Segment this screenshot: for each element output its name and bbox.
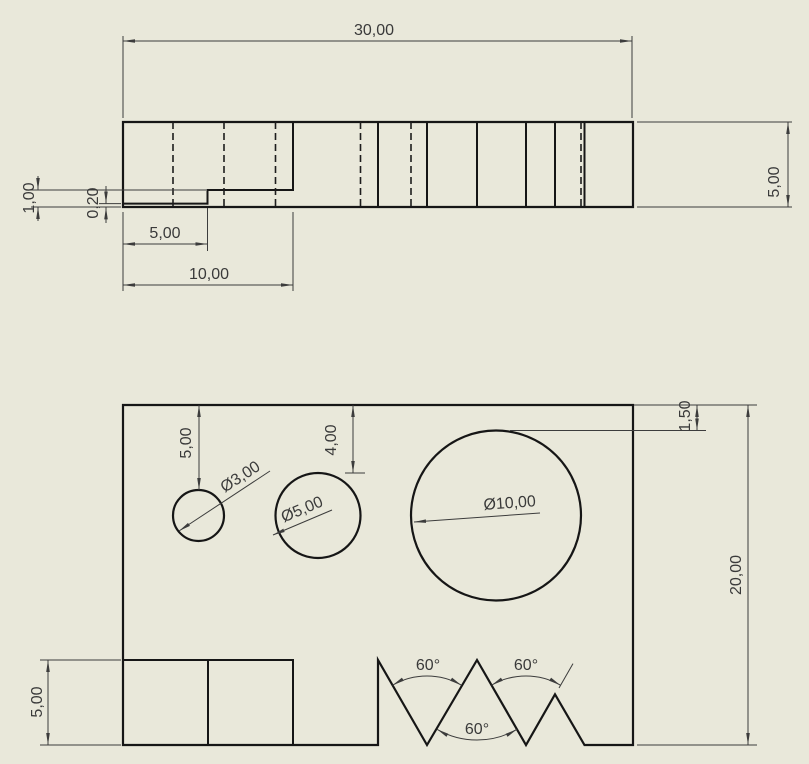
dim-pocket-width-label: 10,00 [189, 266, 229, 283]
notch-angle-right-label: 60° [514, 657, 538, 674]
drawing-background [0, 0, 809, 764]
dim-thickness-label: 5,00 [766, 166, 783, 197]
dim-lip-width-label: 5,00 [149, 225, 180, 242]
dim-pocket-depth-label: 1,00 [21, 182, 38, 213]
dim-recess-height-label: 5,00 [29, 686, 46, 717]
dim-hole-medium-offset-label: 4,00 [323, 424, 340, 455]
technical-drawing-canvas: 30,00 5,00 1,00 0,20 5,00 [0, 0, 809, 764]
dim-overall-width-label: 30,00 [354, 22, 394, 39]
dim-lip-depth-label: 0,20 [85, 187, 102, 218]
notch-angle-bottom-label: 60° [465, 721, 489, 738]
dim-hole-small-offset-label: 5,00 [178, 427, 195, 458]
notch-angle-left-label: 60° [416, 657, 440, 674]
dim-overall-height-label: 20,00 [728, 555, 745, 595]
